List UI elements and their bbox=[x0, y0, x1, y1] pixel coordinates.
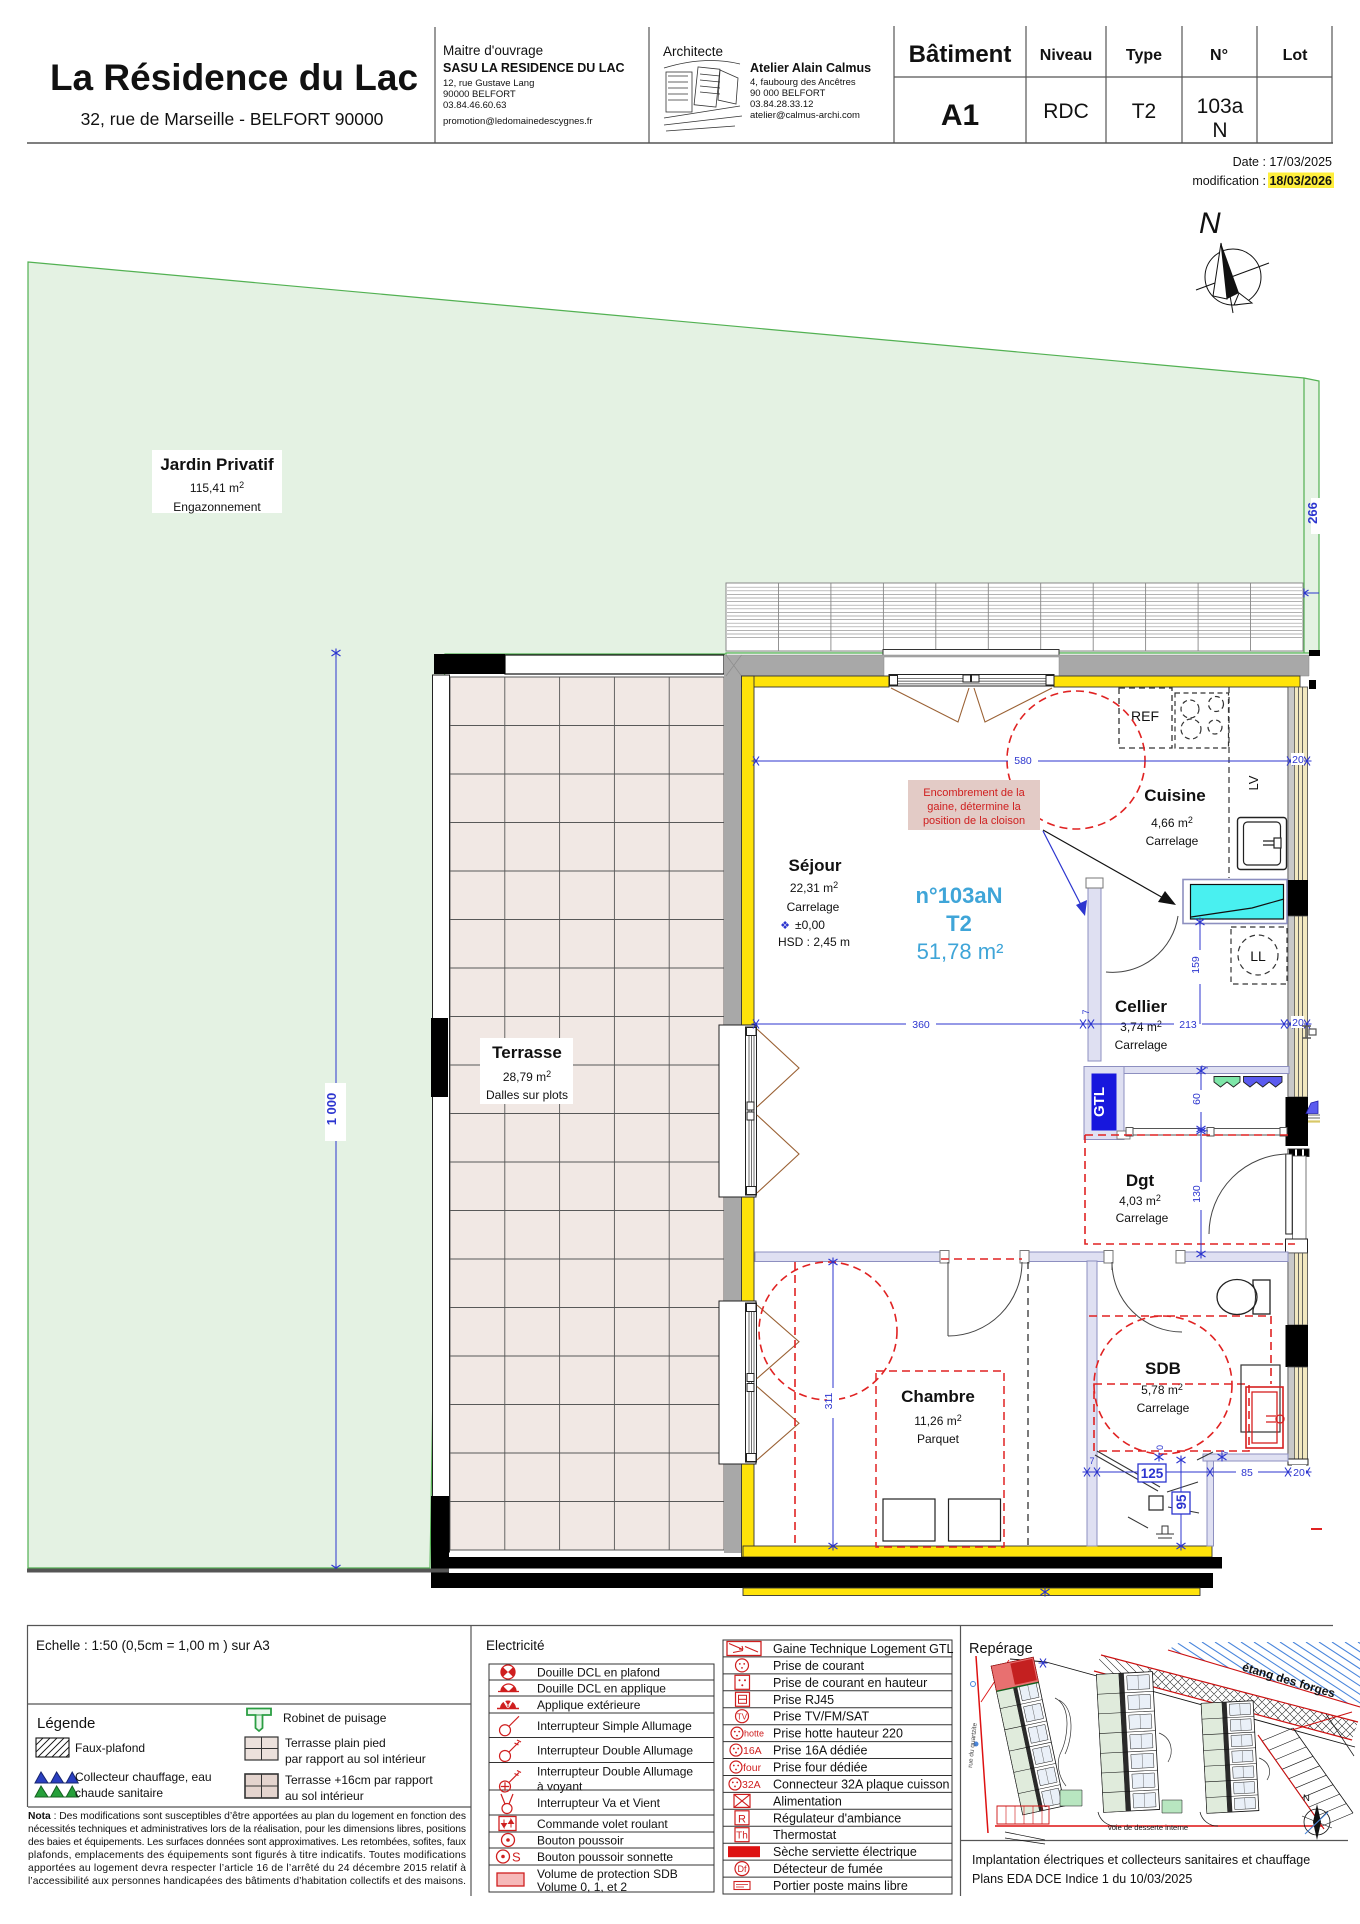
svg-text:Régulateur d'ambiance: Régulateur d'ambiance bbox=[773, 1811, 901, 1825]
svg-text:20: 20 bbox=[1293, 1467, 1305, 1479]
svg-text:16A: 16A bbox=[743, 1745, 762, 1757]
svg-text:11,26 m2: 11,26 m2 bbox=[914, 1413, 961, 1428]
svg-text:S: S bbox=[512, 1850, 521, 1865]
svg-text:Dgt: Dgt bbox=[1126, 1171, 1155, 1190]
svg-text:Niveau: Niveau bbox=[1040, 47, 1092, 64]
svg-text:Carrelage: Carrelage bbox=[1115, 1038, 1168, 1052]
svg-text:La Résidence du Lac: La Résidence du Lac bbox=[50, 57, 418, 98]
svg-text:❖: ❖ bbox=[780, 920, 790, 932]
svg-text:hotte: hotte bbox=[744, 1729, 764, 1739]
svg-text:Jardin Privatif: Jardin Privatif bbox=[160, 455, 274, 474]
svg-text:95: 95 bbox=[1174, 1494, 1189, 1510]
svg-text:Commande volet roulant: Commande volet roulant bbox=[537, 1817, 668, 1831]
svg-text:position de la cloison: position de la cloison bbox=[923, 815, 1025, 827]
svg-text:chaude sanitaire: chaude sanitaire bbox=[75, 1786, 163, 1800]
svg-text:Nota : Des modifications sont: Nota : Des modifications sont susceptibl… bbox=[28, 1811, 466, 1822]
svg-text:213: 213 bbox=[1179, 1019, 1197, 1031]
svg-text:modification : 18/03/2026: modification : 18/03/2026 bbox=[1192, 174, 1332, 188]
svg-text:Douille DCL en applique: Douille DCL en applique bbox=[537, 1682, 666, 1696]
svg-text:Portier poste mains libre: Portier poste mains libre bbox=[773, 1879, 908, 1893]
svg-text:90 000 BELFORT: 90 000 BELFORT bbox=[750, 88, 826, 99]
svg-text:Dalles sur plots: Dalles sur plots bbox=[486, 1088, 568, 1102]
svg-text:Maitre d'ouvrage: Maitre d'ouvrage bbox=[443, 43, 543, 58]
svg-text:Chambre: Chambre bbox=[901, 1387, 975, 1406]
svg-text:Terrasse +16cm par rapport: Terrasse +16cm par rapport bbox=[285, 1773, 433, 1787]
svg-text:Interrupteur Simple Allumage: Interrupteur Simple Allumage bbox=[537, 1719, 692, 1733]
svg-text:Type: Type bbox=[1126, 47, 1162, 64]
svg-text:l’accessibilité aux personnes: l’accessibilité aux personnes handicapée… bbox=[28, 1876, 466, 1887]
svg-text:Bouton poussoir: Bouton poussoir bbox=[537, 1834, 624, 1848]
svg-text:RDC: RDC bbox=[1043, 100, 1089, 123]
svg-text:REF: REF bbox=[1131, 708, 1159, 724]
svg-text:GTL: GTL bbox=[1091, 1087, 1108, 1117]
svg-text:Carrelage: Carrelage bbox=[1116, 1211, 1169, 1225]
svg-text:Carrelage: Carrelage bbox=[787, 900, 840, 914]
svg-text:T2: T2 bbox=[1132, 100, 1157, 123]
svg-text:Douille DCL en plafond: Douille DCL en plafond bbox=[537, 1666, 660, 1680]
svg-text:A1: A1 bbox=[941, 99, 979, 132]
svg-text:N: N bbox=[1303, 1793, 1310, 1804]
svg-text:N°: N° bbox=[1210, 47, 1228, 64]
svg-text:1 000: 1 000 bbox=[324, 1093, 339, 1126]
svg-text:Bâtiment: Bâtiment bbox=[909, 41, 1012, 68]
svg-text:LL: LL bbox=[1250, 948, 1266, 964]
svg-text:gaine, détermine la: gaine, détermine la bbox=[927, 801, 1021, 813]
svg-text:4,66 m2: 4,66 m2 bbox=[1151, 815, 1193, 830]
svg-text:Cellier: Cellier bbox=[1115, 997, 1167, 1016]
svg-text:Volume 0, 1, et 2: Volume 0, 1, et 2 bbox=[537, 1880, 627, 1894]
svg-text:plafonds, emplacements des équ: plafonds, emplacements des équipements s… bbox=[28, 1850, 466, 1861]
svg-text:03.84.46.60.63: 03.84.46.60.63 bbox=[443, 100, 506, 111]
svg-text:Volume de protection SDB: Volume de protection SDB bbox=[537, 1867, 678, 1881]
svg-text:Légende: Légende bbox=[37, 1715, 95, 1732]
svg-text:51,78 m²: 51,78 m² bbox=[917, 939, 1004, 964]
svg-text:0: 0 bbox=[1155, 1445, 1165, 1450]
svg-text:Thermostat: Thermostat bbox=[773, 1828, 837, 1842]
svg-text:Séjour: Séjour bbox=[789, 856, 842, 875]
svg-text:7: 7 bbox=[1220, 1450, 1230, 1455]
svg-text:N: N bbox=[1199, 207, 1221, 240]
svg-text:nécessités techniques et admin: nécessités techniques et administratives… bbox=[28, 1824, 466, 1835]
svg-text:7: 7 bbox=[1200, 1065, 1210, 1070]
svg-text:Prise de courant: Prise de courant bbox=[773, 1659, 865, 1673]
svg-text:Interrupteur Double Allumage: Interrupteur Double Allumage bbox=[537, 1765, 693, 1779]
svg-text:Prise TV/FM/SAT: Prise TV/FM/SAT bbox=[773, 1710, 869, 1724]
svg-text:Df: Df bbox=[738, 1864, 747, 1874]
svg-text:R: R bbox=[738, 1813, 746, 1825]
svg-text:85: 85 bbox=[1241, 1467, 1253, 1479]
svg-text:130: 130 bbox=[1191, 1185, 1203, 1203]
svg-text:apportées au logement devra re: apportées au logement devra respecter l’… bbox=[28, 1863, 466, 1874]
svg-text:Repérage: Repérage bbox=[969, 1641, 1033, 1657]
svg-text:Bouton poussoir sonnette: Bouton poussoir sonnette bbox=[537, 1850, 673, 1864]
svg-text:Carrelage: Carrelage bbox=[1137, 1401, 1190, 1415]
svg-text:Terrasse plain pied: Terrasse plain pied bbox=[285, 1736, 386, 1750]
svg-text:Th: Th bbox=[736, 1831, 748, 1842]
svg-text:Echelle : 1:50 (0,5cm = 1,00 m: Echelle : 1:50 (0,5cm = 1,00 m ) sur A3 bbox=[36, 1638, 270, 1653]
svg-text:Prise de courant en hauteur: Prise de courant en hauteur bbox=[773, 1676, 927, 1690]
svg-text:voie de desserte interne: voie de desserte interne bbox=[1108, 1823, 1188, 1832]
svg-text:N: N bbox=[1212, 119, 1227, 142]
svg-text:90000 BELFORT: 90000 BELFORT bbox=[443, 89, 516, 100]
svg-text:7: 7 bbox=[1081, 1009, 1091, 1014]
svg-text:SASU LA RESIDENCE DU LAC: SASU LA RESIDENCE DU LAC bbox=[443, 61, 625, 75]
svg-text:103a: 103a bbox=[1197, 95, 1244, 118]
svg-text:7: 7 bbox=[1089, 1456, 1094, 1466]
svg-text:n°103aN: n°103aN bbox=[915, 883, 1002, 908]
svg-text:Connecteur 32A plaque cuisson: Connecteur 32A plaque cuisson bbox=[773, 1777, 950, 1791]
svg-text:3,74 m2: 3,74 m2 bbox=[1120, 1019, 1162, 1034]
svg-text:Implantation électriques et co: Implantation électriques et collecteurs … bbox=[972, 1853, 1310, 1867]
svg-text:20: 20 bbox=[1292, 754, 1304, 766]
svg-text:Sèche serviette électrique: Sèche serviette électrique bbox=[773, 1845, 917, 1859]
svg-text:Prise 16A dédiée: Prise 16A dédiée bbox=[773, 1744, 868, 1758]
svg-text:HSD : 2,45 m: HSD : 2,45 m bbox=[778, 935, 850, 949]
svg-text:Cuisine: Cuisine bbox=[1144, 786, 1205, 805]
svg-text:Prise hotte hauteur 220: Prise hotte hauteur 220 bbox=[773, 1727, 903, 1741]
svg-text:Lot: Lot bbox=[1283, 47, 1309, 64]
svg-text:Gaine Technique Logement GTL: Gaine Technique Logement GTL bbox=[773, 1642, 953, 1656]
svg-text:SDB: SDB bbox=[1145, 1359, 1181, 1378]
svg-text:Parquet: Parquet bbox=[917, 1432, 960, 1446]
svg-text:promotion@ledomainedescygnes.f: promotion@ledomainedescygnes.fr bbox=[443, 116, 593, 127]
svg-text:Robinet de puisage: Robinet de puisage bbox=[283, 1711, 387, 1725]
svg-text:22,31 m2: 22,31 m2 bbox=[790, 880, 838, 895]
svg-text:Interrupteur Va et Vient: Interrupteur Va et Vient bbox=[537, 1796, 661, 1810]
svg-text:four: four bbox=[743, 1762, 762, 1774]
svg-text:Encombrement de la: Encombrement de la bbox=[923, 787, 1025, 799]
svg-text:par rapport au sol intérieur: par rapport au sol intérieur bbox=[285, 1752, 426, 1766]
svg-text:60: 60 bbox=[1191, 1093, 1203, 1105]
svg-text:Prise four dédiée: Prise four dédiée bbox=[773, 1761, 868, 1775]
svg-text:Terrasse: Terrasse bbox=[492, 1043, 562, 1062]
svg-text:32A: 32A bbox=[742, 1779, 761, 1791]
svg-text:au sol intérieur: au sol intérieur bbox=[285, 1789, 364, 1803]
svg-text:4, faubourg des Ancêtres: 4, faubourg des Ancêtres bbox=[750, 77, 856, 88]
svg-text:Carrelage: Carrelage bbox=[1146, 834, 1199, 848]
svg-text:Prise RJ45: Prise RJ45 bbox=[773, 1693, 834, 1707]
svg-text:Atelier Alain Calmus: Atelier Alain Calmus bbox=[750, 61, 871, 75]
svg-text:32, rue de Marseille - BELFORT: 32, rue de Marseille - BELFORT 90000 bbox=[81, 109, 384, 129]
svg-text:Alimentation: Alimentation bbox=[773, 1794, 842, 1808]
svg-text:±0,00: ±0,00 bbox=[795, 918, 825, 932]
svg-text:Collecteur chauffage, eau: Collecteur chauffage, eau bbox=[75, 1770, 212, 1784]
svg-text:TV: TV bbox=[737, 1713, 748, 1722]
svg-text:Plans EDA DCE Indice 1 du 10/0: Plans EDA DCE Indice 1 du 10/03/2025 bbox=[972, 1872, 1192, 1886]
svg-text:580: 580 bbox=[1014, 755, 1032, 767]
svg-text:125: 125 bbox=[1141, 1466, 1164, 1481]
svg-text:LV: LV bbox=[1246, 775, 1261, 790]
svg-text:159: 159 bbox=[1190, 956, 1202, 974]
svg-text:Faux-plafond: Faux-plafond bbox=[75, 1741, 145, 1755]
svg-text:à voyant: à voyant bbox=[537, 1780, 583, 1794]
svg-text:Interrupteur Double Allumage: Interrupteur Double Allumage bbox=[537, 1744, 693, 1758]
svg-text:20: 20 bbox=[1292, 1017, 1304, 1029]
svg-text:des baies et équipements. Les: des baies et équipements. Les surfaces d… bbox=[28, 1837, 467, 1848]
svg-text:T2: T2 bbox=[946, 911, 972, 936]
svg-text:Applique extérieure: Applique extérieure bbox=[537, 1698, 641, 1712]
svg-text:360: 360 bbox=[912, 1019, 930, 1031]
svg-text:Engazonnement: Engazonnement bbox=[173, 500, 261, 514]
svg-text:Architecte: Architecte bbox=[663, 44, 723, 59]
svg-text:atelier@calmus-archi.com: atelier@calmus-archi.com bbox=[750, 110, 860, 121]
svg-text:266: 266 bbox=[1305, 502, 1320, 524]
svg-text:Détecteur de fumée: Détecteur de fumée bbox=[773, 1862, 883, 1876]
svg-text:4,03 m2: 4,03 m2 bbox=[1119, 1193, 1161, 1208]
svg-text:Date : 17/03/2025: Date : 17/03/2025 bbox=[1233, 155, 1332, 169]
svg-text:311: 311 bbox=[823, 1392, 835, 1409]
svg-text:115,41 m2: 115,41 m2 bbox=[190, 480, 244, 495]
svg-text:Electricité: Electricité bbox=[486, 1638, 545, 1653]
svg-text:03.84.28.33.12: 03.84.28.33.12 bbox=[750, 99, 813, 110]
svg-text:28,79 m2: 28,79 m2 bbox=[503, 1069, 551, 1084]
svg-text:12, rue Gustave Lang: 12, rue Gustave Lang bbox=[443, 78, 534, 89]
